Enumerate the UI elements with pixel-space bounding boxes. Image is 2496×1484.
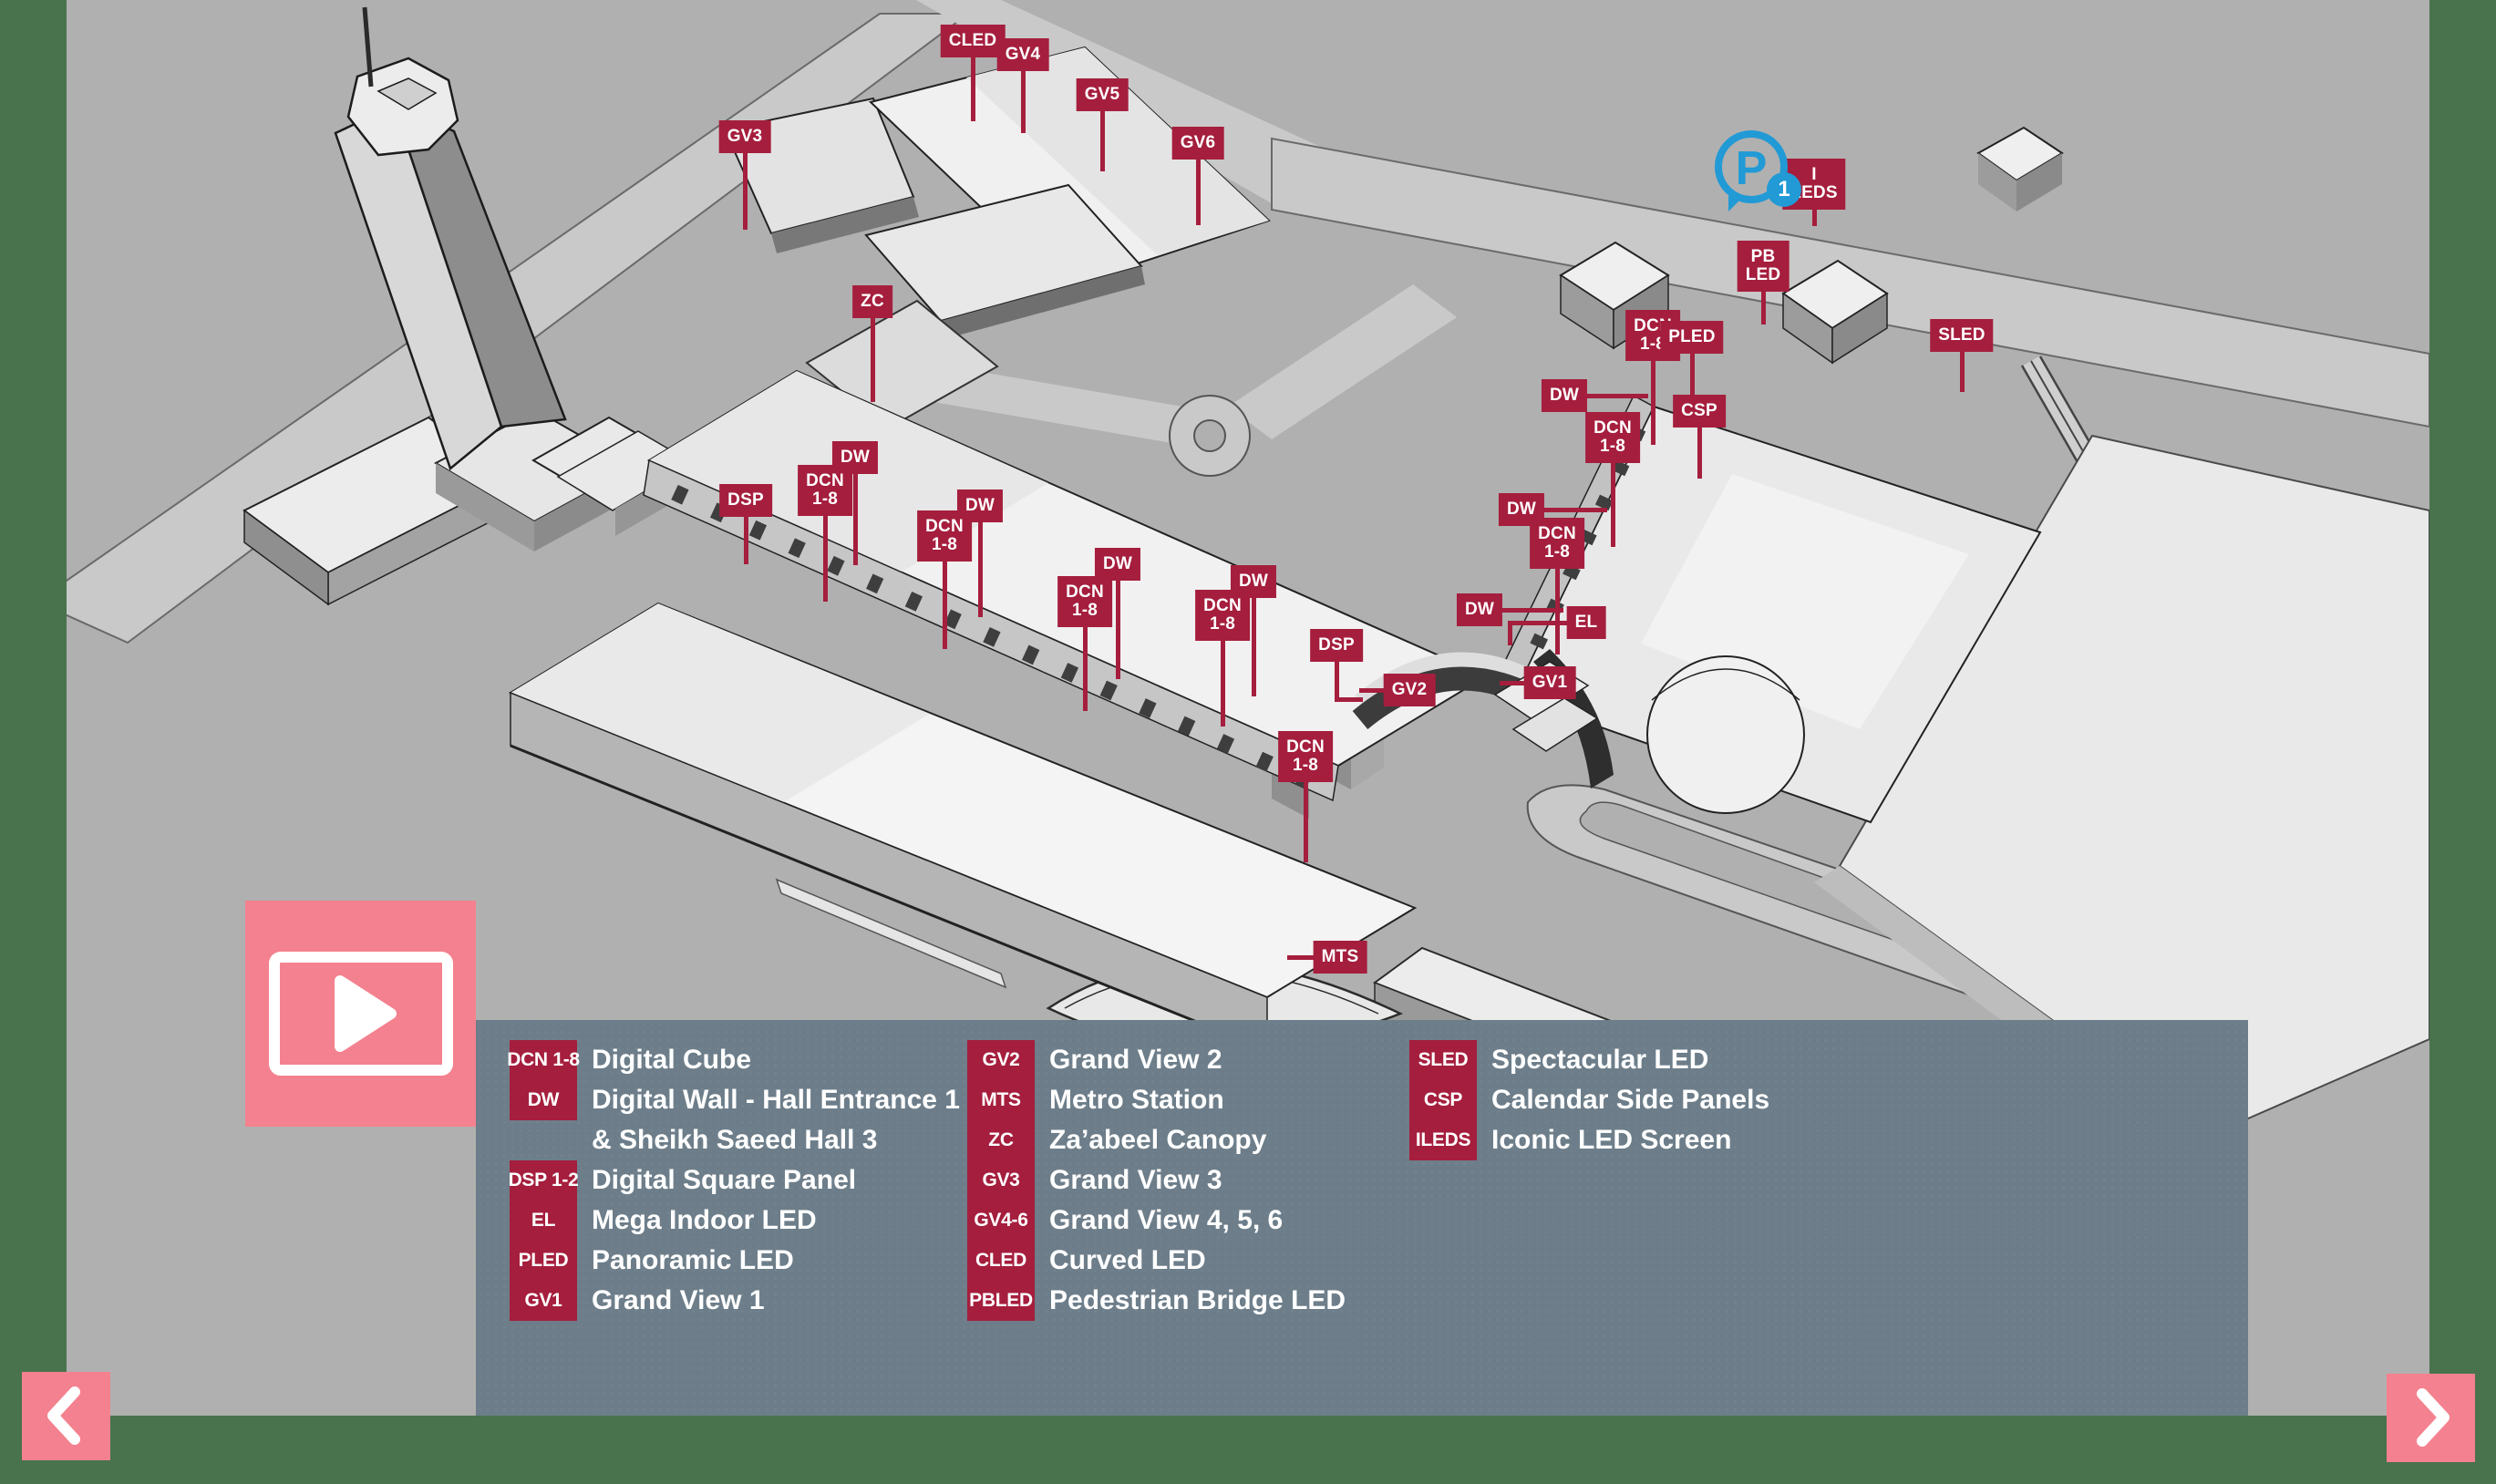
parking-circle-icon: P 1 [1715, 130, 1824, 231]
legend-badge: GV1 [510, 1281, 577, 1321]
next-arrow-button[interactable] [2387, 1374, 2475, 1462]
legend-column-2: GV2Grand View 2MTSMetro StationZCZa’abee… [967, 1040, 1346, 1321]
video-play-button[interactable] [245, 901, 476, 1127]
legend-badge: DCN 1-8 [510, 1040, 577, 1080]
legend-row: GV1Grand View 1 [510, 1281, 1016, 1321]
legend-text: Panoramic LED [592, 1241, 794, 1281]
legend-text: Mega Indoor LED [592, 1201, 817, 1241]
legend-badge: PLED [510, 1241, 577, 1281]
chevron-left-icon [22, 1372, 110, 1460]
legend-badge: DW [510, 1080, 577, 1120]
legend-row: ELMega Indoor LED [510, 1201, 1016, 1241]
legend-text: Za’abeel Canopy [1049, 1120, 1266, 1160]
legend-row: GV3Grand View 3 [967, 1160, 1346, 1201]
legend-text: Grand View 3 [1049, 1160, 1222, 1201]
legend-badge: GV4-6 [967, 1201, 1035, 1241]
legend-badge: PBLED [967, 1281, 1035, 1321]
legend-text: Curved LED [1049, 1241, 1206, 1281]
legend-text: Digital Cube [592, 1040, 751, 1080]
legend-badge: GV3 [967, 1160, 1035, 1201]
legend-row: DSP 1-2Digital Square Panel [510, 1160, 1016, 1201]
legend-text: Iconic LED Screen [1491, 1120, 1731, 1160]
legend-badge: EL [510, 1201, 577, 1241]
legend-badge [510, 1120, 577, 1160]
legend-text: Calendar Side Panels [1491, 1080, 1769, 1120]
legend-badge: ILEDS [1409, 1120, 1477, 1160]
legend-badge: GV2 [967, 1040, 1035, 1080]
chevron-right-icon [2387, 1374, 2475, 1462]
legend-text: Pedestrian Bridge LED [1049, 1281, 1346, 1321]
parking-count: 1 [1778, 177, 1789, 202]
legend-row: CLEDCurved LED [967, 1241, 1346, 1281]
legend-text: Spectacular LED [1491, 1040, 1708, 1080]
legend-row: & Sheikh Saeed Hall 3 [510, 1120, 1016, 1160]
legend-text: & Sheikh Saeed Hall 3 [592, 1120, 877, 1160]
legend-badge: ZC [967, 1120, 1035, 1160]
legend-text: Grand View 2 [1049, 1040, 1222, 1080]
play-icon [245, 901, 476, 1127]
venue-map-page: CLEDGV4GV5GV6GV3ZCDSPDWDCN1-8DWDCN1-8DWD… [0, 0, 2496, 1484]
legend-row: SLEDSpectacular LED [1409, 1040, 1769, 1080]
legend-text: Digital Square Panel [592, 1160, 856, 1201]
legend-row: MTSMetro Station [967, 1080, 1346, 1120]
legend-panel: DCN 1-8Digital CubeDWDigital Wall - Hall… [476, 1020, 2248, 1416]
legend-text: Metro Station [1049, 1080, 1224, 1120]
legend-row: DWDigital Wall - Hall Entrance 1 to 8 [510, 1080, 1016, 1120]
legend-badge: CLED [967, 1241, 1035, 1281]
legend-badge: DSP 1-2 [510, 1160, 577, 1201]
legend-row: GV4-6Grand View 4, 5, 6 [967, 1201, 1346, 1241]
legend-text: Digital Wall - Hall Entrance 1 to 8 [592, 1080, 1016, 1120]
legend-badge: MTS [967, 1080, 1035, 1120]
legend-row: PBLEDPedestrian Bridge LED [967, 1281, 1346, 1321]
legend-badge: CSP [1409, 1080, 1477, 1120]
legend-row: GV2Grand View 2 [967, 1040, 1346, 1080]
legend-row: CSPCalendar Side Panels [1409, 1080, 1769, 1120]
parking-count-badge: 1 [1767, 172, 1801, 207]
legend-badge: SLED [1409, 1040, 1477, 1080]
prev-arrow-button[interactable] [22, 1372, 110, 1460]
legend-row: PLEDPanoramic LED [510, 1241, 1016, 1281]
legend-column-1: DCN 1-8Digital CubeDWDigital Wall - Hall… [510, 1040, 1016, 1321]
legend-row: ZCZa’abeel Canopy [967, 1120, 1346, 1160]
legend-text: Grand View 4, 5, 6 [1049, 1201, 1283, 1241]
legend-column-3: SLEDSpectacular LEDCSPCalendar Side Pane… [1409, 1040, 1769, 1160]
legend-row: DCN 1-8Digital Cube [510, 1040, 1016, 1080]
legend-text: Grand View 1 [592, 1281, 765, 1321]
legend-row: ILEDSIconic LED Screen [1409, 1120, 1769, 1160]
